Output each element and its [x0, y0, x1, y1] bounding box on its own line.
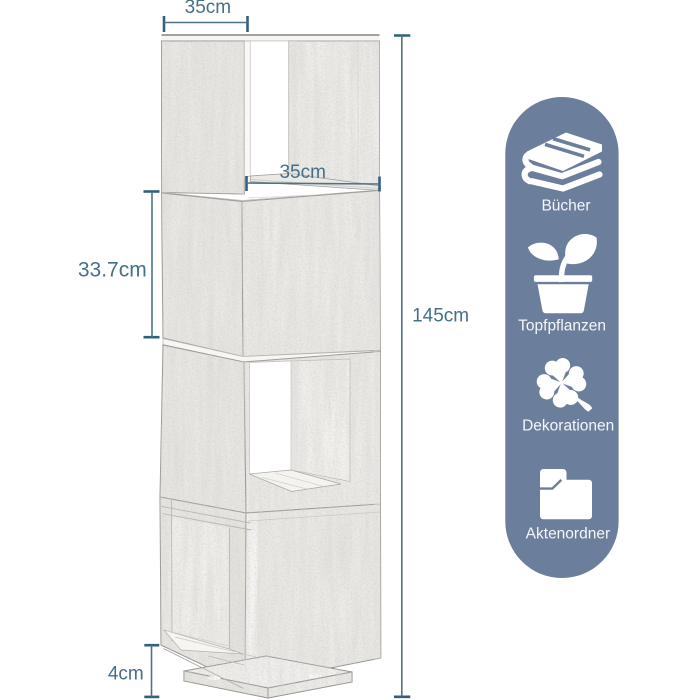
svg-text:35cm: 35cm — [185, 0, 231, 18]
svg-text:Bücher: Bücher — [541, 197, 590, 214]
svg-text:Dekorationen: Dekorationen — [522, 418, 614, 435]
svg-text:33.7cm: 33.7cm — [78, 259, 147, 282]
svg-text:Topfpflanzen: Topfpflanzen — [518, 318, 606, 335]
svg-text:Aktenordner: Aktenordner — [526, 526, 610, 543]
svg-text:4cm: 4cm — [108, 663, 144, 684]
svg-text:35cm: 35cm — [279, 162, 325, 183]
svg-text:145cm: 145cm — [412, 305, 469, 326]
